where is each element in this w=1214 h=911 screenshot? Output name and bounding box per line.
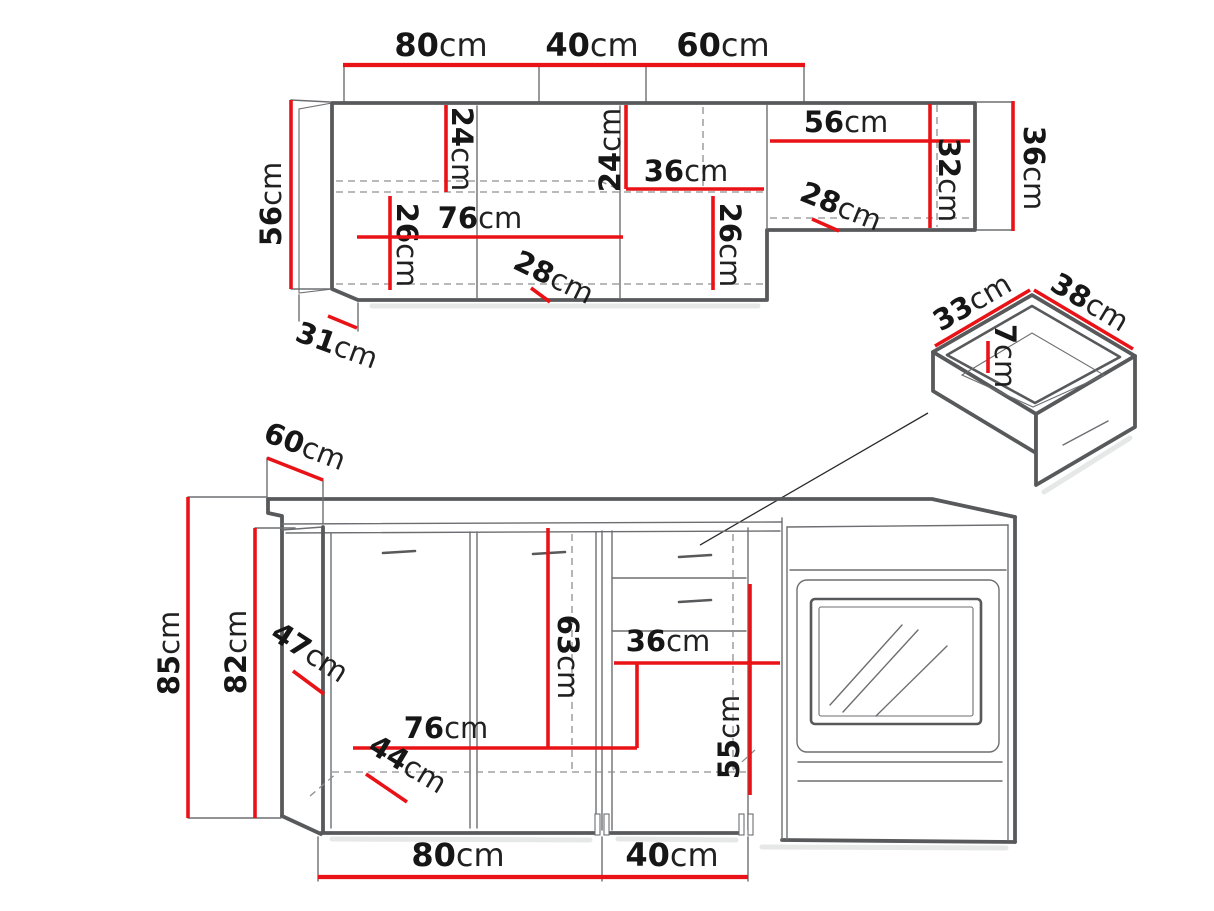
oven-door-frame [797, 580, 999, 752]
dim-label-bottom-40: 40cm [625, 836, 718, 874]
bottom-edge-oven-unit [782, 840, 1015, 842]
dim-label-47-depth: 47cm [265, 615, 354, 690]
leader-line [700, 413, 928, 545]
glass-shine [830, 625, 902, 705]
drawer-handle [679, 600, 711, 602]
extension-line [291, 100, 330, 102]
dim-label-82-height: 82cm [219, 610, 253, 695]
dim-label-top-40: 40cm [545, 26, 638, 64]
dim-label-7: 7cm [988, 324, 1022, 388]
base-cabinets [268, 499, 1015, 848]
upper-left-end-panel [299, 103, 332, 293]
worktop-back-edge [268, 499, 1015, 517]
dim-label-85-height: 85cm [152, 611, 186, 696]
drawer-detail-isometric: 33cm 38cm 7cm [700, 266, 1135, 545]
dim-label-76-lower: 76cm [404, 711, 489, 745]
dim-label-36-mid: 36cm [644, 154, 729, 188]
worktop-front-edge [282, 522, 782, 524]
cabinet-shadow [762, 847, 1006, 848]
dim-label-76-upper: 76cm [438, 201, 523, 235]
dim-label-32: 32cm [932, 138, 966, 223]
cabinet-foot [739, 814, 744, 835]
dim-label-55-height: 55cm [712, 695, 746, 780]
door-handle [383, 551, 415, 553]
dim-label-26-right: 26cm [713, 203, 747, 288]
dim-label-24-mid: 24cm [593, 108, 627, 193]
dim-label-31-depth: 31cm [291, 315, 382, 376]
dim-label-56-height: 56cm [254, 162, 288, 247]
dim-label-top-80: 80cm [394, 26, 487, 64]
cabinet-foot [604, 814, 609, 835]
cabinet-foot [595, 814, 600, 835]
dim-label-36-right: 36cm [1017, 126, 1051, 211]
oven-glass-outer [811, 599, 981, 724]
oven-front-top-edge [787, 525, 1008, 527]
oven-glass-inner [819, 607, 973, 716]
cabinet-foot [748, 814, 753, 835]
glass-shine [876, 646, 947, 716]
drawer-handle [679, 555, 711, 557]
dimension-diagram: 80cm 40cm 60cm 56cm 31cm 24cm 24cm 36c [0, 0, 1214, 911]
dim-label-60-depth: 60cm [259, 415, 350, 477]
dim-label-56-wide: 56cm [804, 105, 889, 139]
dim-label-24-left: 24cm [445, 107, 479, 192]
base-dimensions: 60cm 85cm 82cm 47cm 63cm 36cm 76cm 55cm … [152, 415, 780, 881]
dim-label-63-height: 63cm [551, 615, 585, 700]
dim-label-26-left: 26cm [390, 203, 424, 288]
dim-label-36-lower: 36cm [626, 624, 711, 658]
diagram-canvas: 80cm 40cm 60cm 56cm 31cm 24cm 24cm 36c [0, 0, 1214, 911]
dim-label-top-60: 60cm [676, 26, 769, 64]
worktop-left-end [268, 499, 282, 530]
worktop-front-lower-edge [286, 531, 780, 533]
glass-shine [843, 630, 918, 712]
dim-label-bottom-80: 80cm [411, 836, 504, 874]
top-dimension-run: 80cm 40cm 60cm [343, 26, 805, 102]
side-panel-bottom-edge [282, 816, 321, 834]
